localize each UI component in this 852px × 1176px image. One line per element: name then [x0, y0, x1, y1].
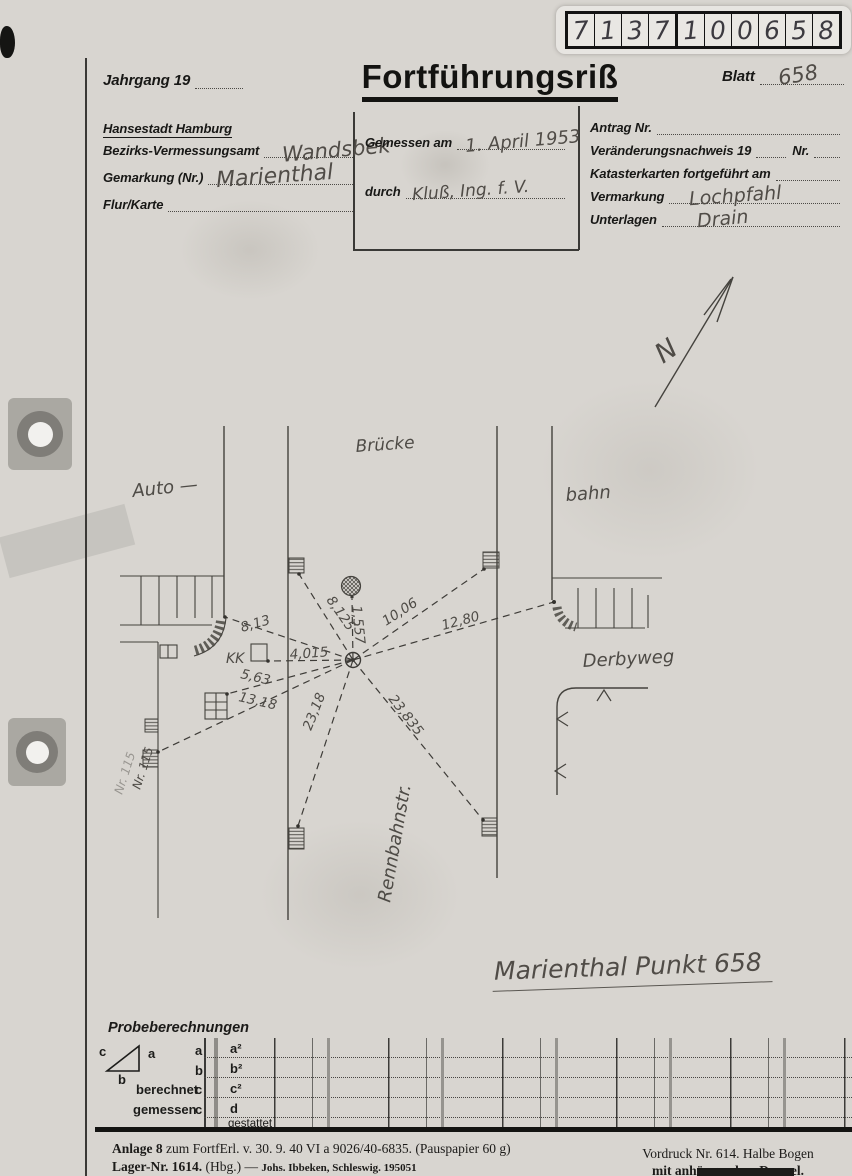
footer-lagernr-bold: Lager-Nr. 1614. [112, 1159, 202, 1174]
measurement-labels: 8,13 8,125 1,557 10,06 12,80 4,015 5,63 … [237, 593, 481, 739]
measurement-value: 12,80 [440, 608, 481, 633]
probe-berechnet-label: berechnet [136, 1082, 198, 1097]
measurement-value: 10,06 [379, 595, 420, 629]
marker-rect [289, 558, 304, 573]
street-label-bruecke: Brücke [355, 433, 415, 457]
street-label-auto: Auto — [130, 474, 198, 502]
derbyweg-corner [557, 688, 648, 795]
probe-row-a: a [195, 1043, 202, 1058]
street-label-rennbahnstr: Rennbahnstr. [374, 782, 415, 903]
curb-hatch-band-right [557, 607, 576, 627]
marker-rect [145, 719, 158, 732]
footer-lagernr-mid: (Hbg.) — [202, 1159, 261, 1174]
footer-anlage-rest: zum FortfErl. v. 30. 9. 40 VI a 9026/40-… [163, 1141, 511, 1156]
tick-mark [557, 712, 568, 726]
survey-sketch: N [0, 0, 852, 1176]
street-label-derbyweg: Derbyweg [582, 646, 675, 672]
triangle-label-c: c [99, 1044, 106, 1059]
derbyweg-corner-ticks [555, 690, 611, 778]
marker-rect [483, 552, 499, 568]
north-arrow-barb [704, 279, 731, 315]
label-kk: KK [226, 651, 246, 667]
triangle-label-a: a [148, 1046, 155, 1061]
probe-title: Probeberechnungen [108, 1020, 249, 1036]
probe-column-grid [222, 1038, 852, 1131]
bottom-rule [95, 1127, 852, 1132]
window-grid [205, 693, 227, 719]
footer-right-line1: Vordruck Nr. 614. Halbe Bogen [618, 1146, 838, 1162]
measure-line [353, 660, 483, 820]
probe-gemessen-label: gemessen [133, 1102, 197, 1117]
probe-row-c2: c [195, 1102, 202, 1117]
measurement-value: 13,18 [237, 689, 278, 713]
footer-left-line2: Lager-Nr. 1614. (Hbg.) — Johs. Ibbeken, … [112, 1159, 417, 1175]
caption-marienthal-punkt: Marienthal Punkt 658 [491, 947, 772, 992]
north-label: N [649, 333, 683, 370]
tick-mark [597, 690, 611, 701]
building-partitions [141, 576, 212, 625]
street-label-bahn: bahn [565, 482, 612, 506]
measurement-value: 23,18 [300, 691, 329, 733]
tree-symbol [342, 577, 361, 599]
measurement-value: 1,557 [348, 605, 368, 646]
measurement-value: 5,63 [239, 666, 272, 688]
caption-wrap: Marienthal Punkt 658 [492, 952, 772, 987]
footer-printer-small: Johs. Ibbeken, Schleswig. 195051 [261, 1162, 416, 1174]
building-partitions [578, 588, 648, 628]
measurement-value: 8,13 [239, 612, 272, 636]
measurement-value: 4,015 [289, 644, 329, 663]
probe-row-b: b [195, 1063, 203, 1078]
kk-box [251, 644, 267, 661]
footer-anlage-bold: Anlage 8 [112, 1141, 163, 1156]
measurement-value: 23,835 [385, 692, 427, 739]
probe-row-c1: c [195, 1082, 202, 1097]
marker-rect [289, 828, 304, 849]
footer-left-line1: Anlage 8 zum FortfErl. v. 30. 9. 40 VI a… [112, 1141, 511, 1157]
scanned-survey-sheet: 7 1 3 7 1 0 0 6 5 8 Jahrgang 19 Fortführ… [0, 0, 852, 1176]
scan-edge-bar [697, 1168, 794, 1176]
triangle-label-b: b [118, 1072, 126, 1087]
measure-line [298, 660, 353, 826]
